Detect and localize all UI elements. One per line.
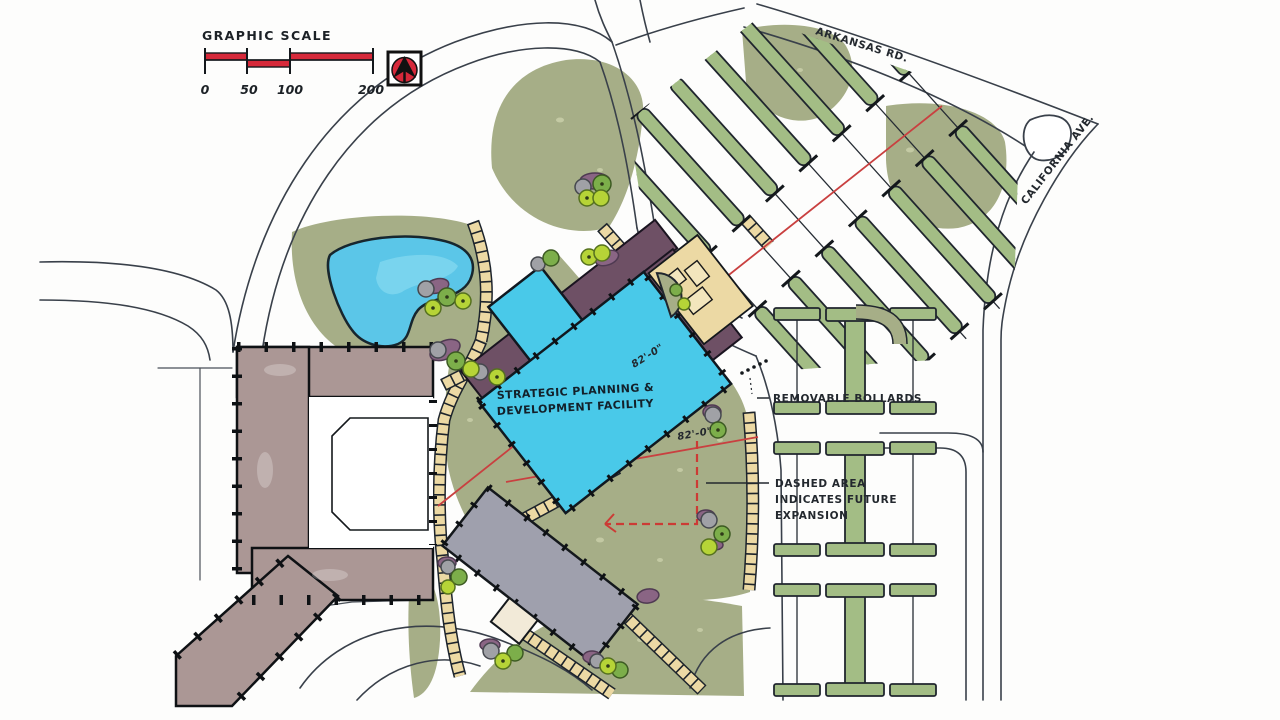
graphic-scale: GRAPHIC SCALE 0 50 100 200 bbox=[201, 28, 385, 97]
existing-building bbox=[176, 347, 433, 706]
scale-tick-0: 0 bbox=[201, 82, 210, 97]
callout-bollards: REMOVABLE BOLLARDS bbox=[773, 393, 922, 405]
callout-expansion-line3: EXPANSION bbox=[775, 510, 849, 522]
courtyard bbox=[309, 397, 433, 548]
callout-expansion-line2: INDICATES FUTURE bbox=[775, 494, 897, 506]
callout-expansion-line1: DASHED AREA bbox=[775, 478, 866, 490]
graphic-scale-label: GRAPHIC SCALE bbox=[202, 28, 332, 43]
scale-tick-50: 50 bbox=[240, 82, 258, 97]
site-plan-canvas: ARKANSAS RD. CALIFORNIA AVE. STRATEGIC P… bbox=[0, 0, 1280, 720]
site-plan-page: ARKANSAS RD. CALIFORNIA AVE. STRATEGIC P… bbox=[0, 0, 1280, 720]
scale-tick-200: 200 bbox=[358, 82, 384, 97]
scale-tick-100: 100 bbox=[277, 82, 303, 97]
north-arrow-icon bbox=[388, 52, 421, 85]
